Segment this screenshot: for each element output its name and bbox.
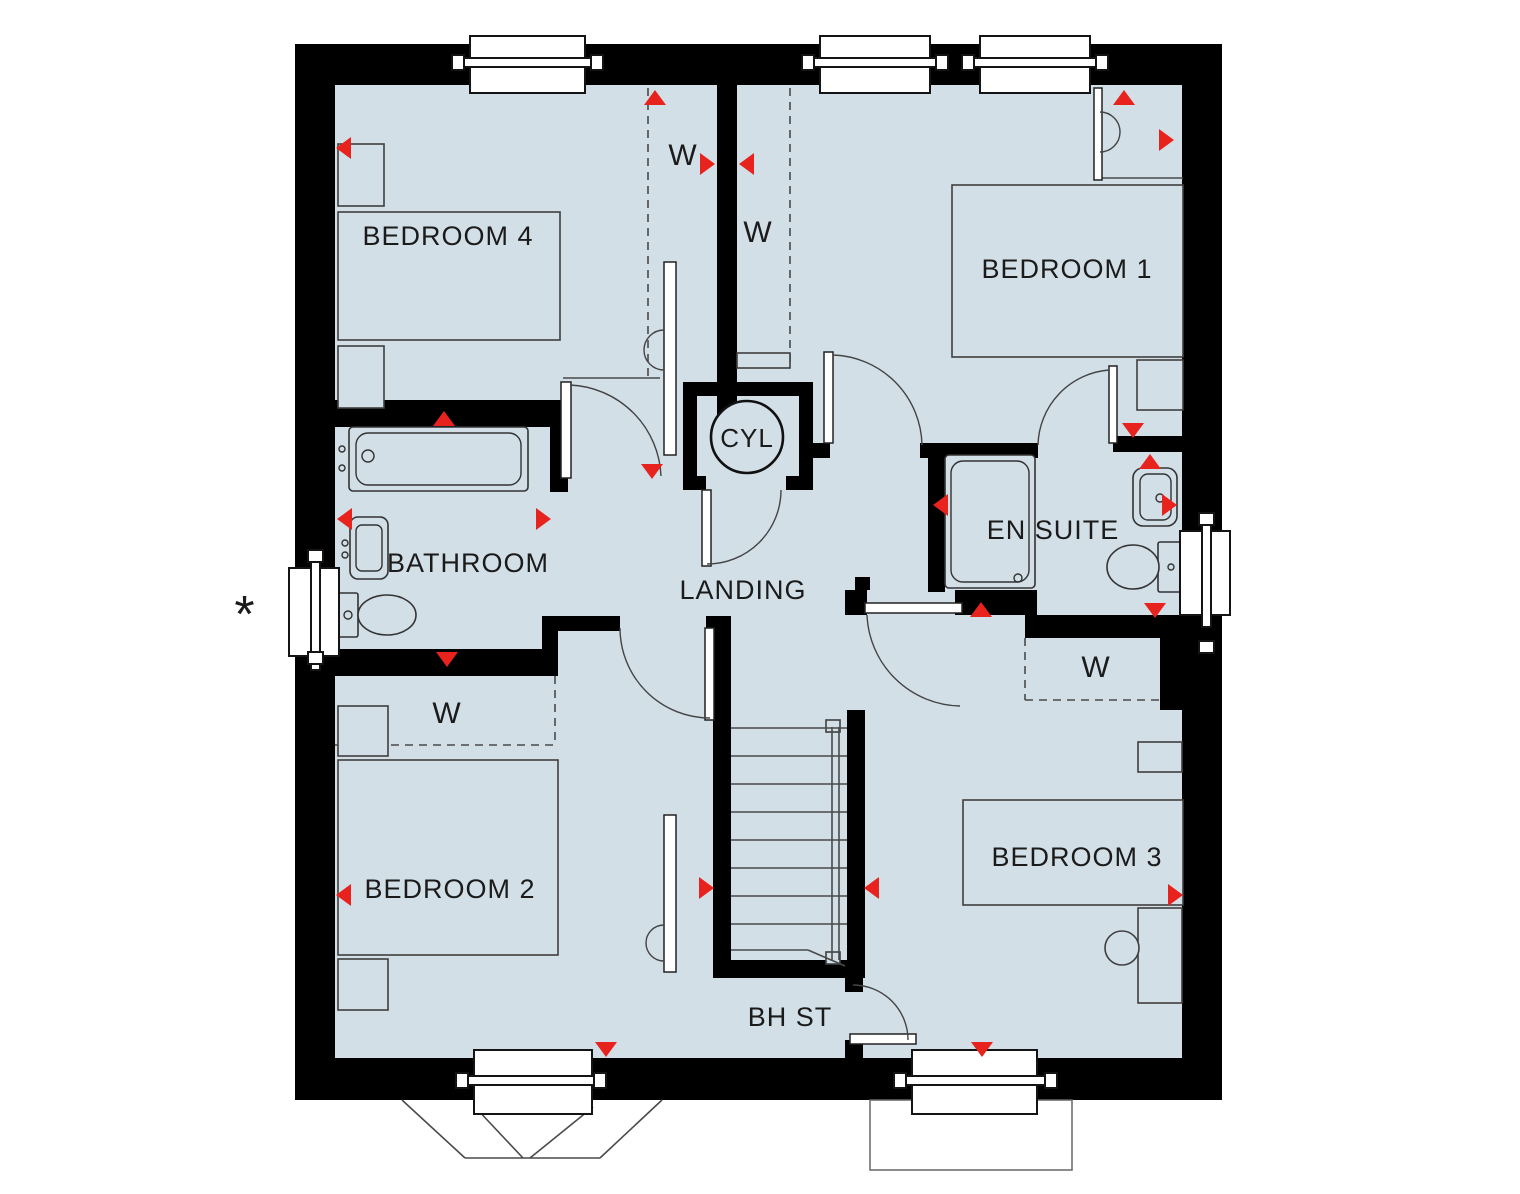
window-cap (594, 1073, 606, 1088)
wall-cyl-right (799, 382, 813, 490)
wall-w3-right (1160, 638, 1182, 710)
wall-cyl-stub-right (786, 476, 813, 490)
room-label-cyl: CYL (720, 423, 774, 453)
window-cap (1096, 55, 1108, 70)
bedside-table (338, 959, 388, 1010)
door-leaf-bhst (850, 1034, 916, 1044)
wall-cyl-left (683, 382, 697, 490)
wall-w3-top (1025, 615, 1182, 638)
wall-stub (855, 577, 870, 590)
asterisk-marker: * (234, 586, 255, 644)
bath (349, 427, 528, 491)
wardrobe-label: W (668, 139, 697, 172)
window-glazing (1202, 519, 1211, 627)
bay-outline (402, 1100, 465, 1158)
toilet-bowl-ensuite (1107, 545, 1159, 589)
stair-newel (826, 720, 840, 732)
door-leaf-bathroom (561, 382, 571, 478)
outer-wall-bottom (295, 1058, 1222, 1100)
room-label-bedroom2: BEDROOM 2 (364, 874, 535, 904)
window-glazing (966, 58, 1104, 67)
room-label-bedroom3: BEDROOM 3 (991, 842, 1162, 872)
door-leaf-bedroom3 (865, 603, 962, 613)
door-leaf-cyl (702, 490, 711, 566)
wall-landing-bed3-left (845, 590, 867, 615)
window-cap (456, 1073, 468, 1088)
bedside-table (1138, 908, 1182, 1003)
toilet-bowl-bathroom (358, 595, 416, 635)
window-cap (308, 652, 323, 664)
wardrobe-label: W (743, 216, 772, 249)
bed-bedroom2 (338, 760, 558, 955)
room-label-landing: LANDING (679, 575, 806, 605)
window-cap (452, 55, 464, 70)
door-leaf-ensuite (1109, 366, 1117, 443)
toilet-cistern-ensuite (1158, 542, 1181, 592)
window-cap (894, 1073, 906, 1088)
window-cap (1045, 1073, 1057, 1088)
bedside-table (1138, 742, 1182, 772)
door-leaf-bedroom2-closet (664, 815, 676, 972)
wall-bed1-door-jamb (806, 443, 830, 458)
door-leaf-bedroom1-closet (1094, 88, 1102, 180)
room-label-bedroom1: BEDROOM 1 (981, 254, 1152, 284)
window-glazing (456, 58, 599, 67)
room-label-ensuite: EN SUITE (987, 515, 1120, 545)
room-label-bathroom: BATHROOM (387, 548, 549, 578)
window-cap (308, 550, 323, 562)
window-cap (802, 55, 814, 70)
door-leaf-bedroom2 (705, 628, 714, 720)
shelf (737, 353, 790, 368)
bedside-table (1137, 360, 1183, 410)
window-glazing (898, 1076, 1051, 1085)
window-glazing (460, 1076, 606, 1085)
bedside-table (338, 346, 384, 408)
wall-stairs-left (713, 631, 731, 971)
wall-cyl-stub-left (683, 476, 706, 490)
door-leaf-bedroom4 (664, 262, 676, 455)
wall-cyl-top (683, 382, 813, 396)
wardrobe-label: W (432, 697, 461, 730)
window-glazing (806, 58, 944, 67)
room-label-bedroom4: BEDROOM 4 (362, 221, 533, 251)
bay-outline (600, 1100, 662, 1158)
room-label-bhst: BH ST (748, 1002, 833, 1032)
window-cap (1199, 641, 1214, 653)
bedside-table (338, 706, 388, 756)
window-cap (962, 55, 974, 70)
wall-center-top (717, 85, 737, 455)
wall-ensuite-left (928, 443, 945, 592)
wardrobe-label: W (1081, 651, 1110, 684)
wall-stairs-right (847, 710, 865, 978)
wall-ensuite-top-right (1113, 436, 1183, 452)
wall-landing-bed3-right (955, 590, 1037, 615)
door-leaf-bedroom1 (824, 352, 833, 443)
wall-jog (542, 616, 558, 676)
stool (1105, 931, 1139, 965)
floor-plan: BEDROOM 4WWBEDROOM 1CYLBATHROOMLANDINGEN… (0, 0, 1520, 1194)
floor-plan-page: BEDROOM 4WWBEDROOM 1CYLBATHROOMLANDINGEN… (0, 0, 1520, 1194)
window-cap (591, 55, 603, 70)
window-cap (936, 55, 948, 70)
window-cap (1199, 513, 1214, 525)
wall-landing-bed2 (558, 616, 620, 631)
